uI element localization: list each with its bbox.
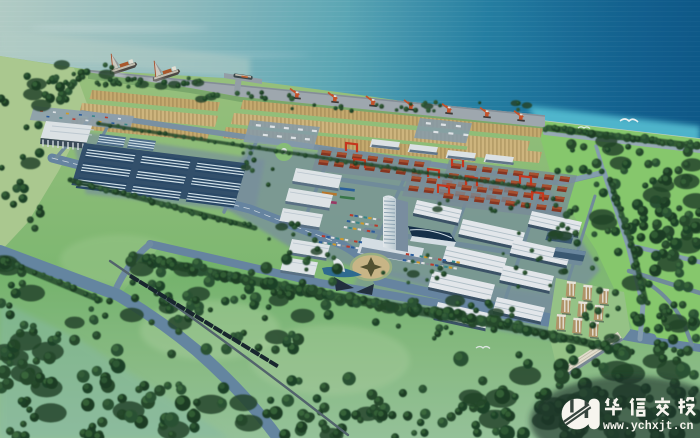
svg-text:www.ychxjt.cn: www.ychxjt.cn (603, 420, 693, 433)
